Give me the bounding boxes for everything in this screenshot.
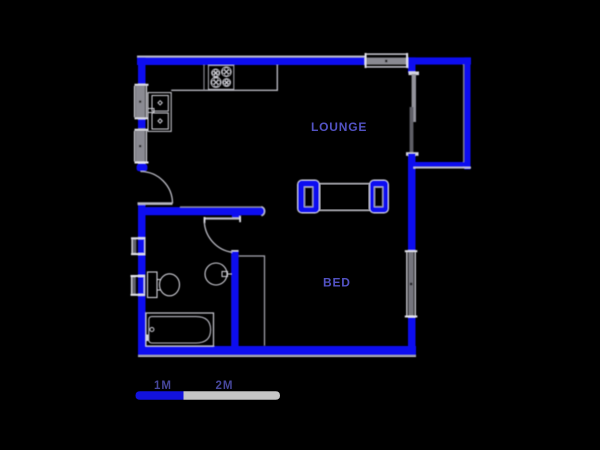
- svg-text:LOUNGE: LOUNGE: [311, 120, 367, 134]
- svg-text:1M: 1M: [154, 380, 172, 392]
- svg-text:BED: BED: [323, 276, 351, 290]
- svg-text:2M: 2M: [216, 380, 234, 392]
